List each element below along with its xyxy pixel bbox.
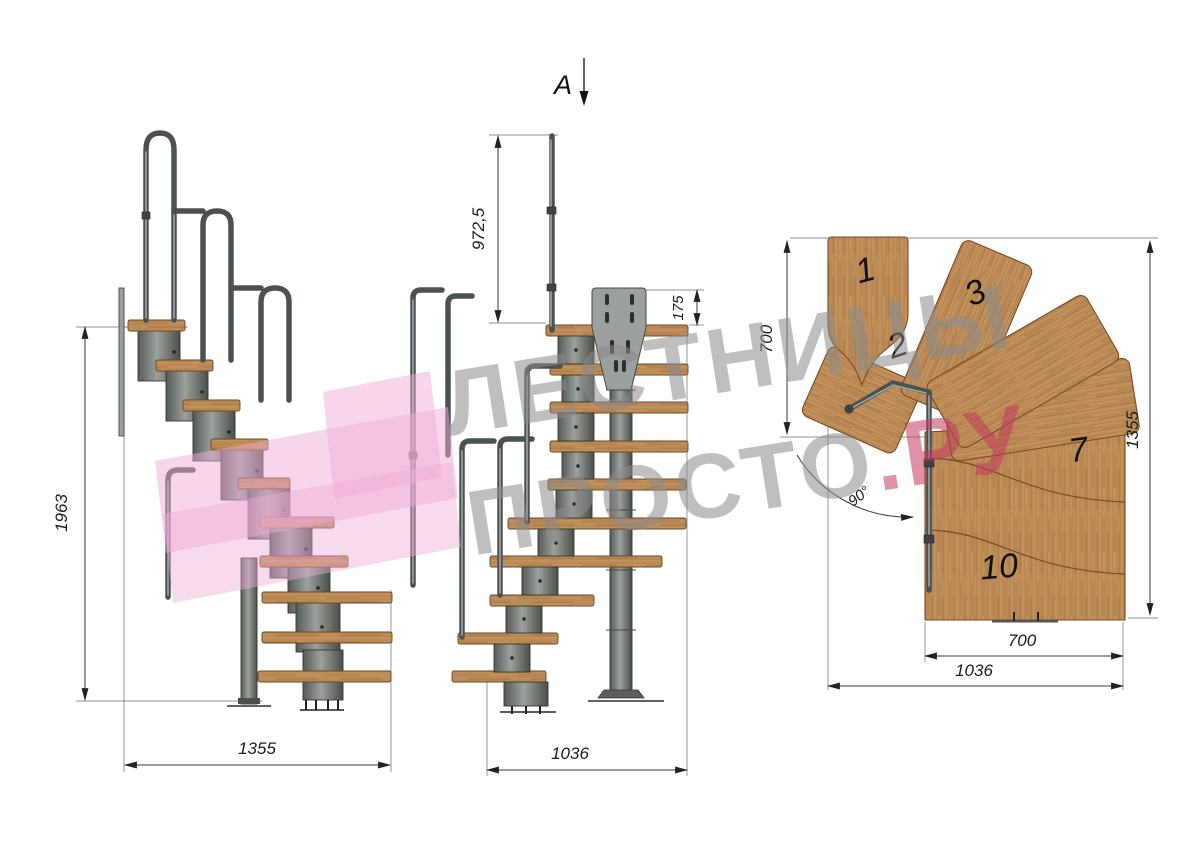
- dimension-1963: 1963: [52, 327, 85, 700]
- dimension-700-bottom: 700: [925, 631, 1123, 656]
- dimension-label: 972,5: [469, 207, 488, 250]
- technical-drawing: 1963 1355 A: [0, 0, 1200, 849]
- dimension-label: 1355: [1123, 411, 1142, 449]
- dimension-label: 1036: [955, 661, 993, 680]
- handrail-loop: [231, 288, 289, 400]
- wall-bracket: [119, 288, 124, 436]
- column-base: [238, 698, 260, 704]
- dimension-label: 700: [1008, 631, 1037, 650]
- dimension-1355-plan: 1355: [1123, 241, 1150, 615]
- dimension-1036-front: 1036: [487, 744, 687, 770]
- handrail-loop: [174, 211, 231, 360]
- handrail-loop: [146, 133, 174, 320]
- dimension-label: 1963: [52, 494, 71, 532]
- dimension-label: 1036: [551, 744, 589, 763]
- section-arrowhead: [580, 91, 589, 106]
- tread-number: 10: [979, 546, 1020, 587]
- dimension-label: 1355: [238, 739, 276, 758]
- dimension-1036-plan: 1036: [828, 661, 1123, 686]
- staircase-drawing-page: 1963 1355 A: [0, 0, 1200, 849]
- section-label: A: [552, 70, 572, 100]
- dimension-1355-side: 1355: [125, 739, 390, 765]
- column-base: [598, 690, 644, 698]
